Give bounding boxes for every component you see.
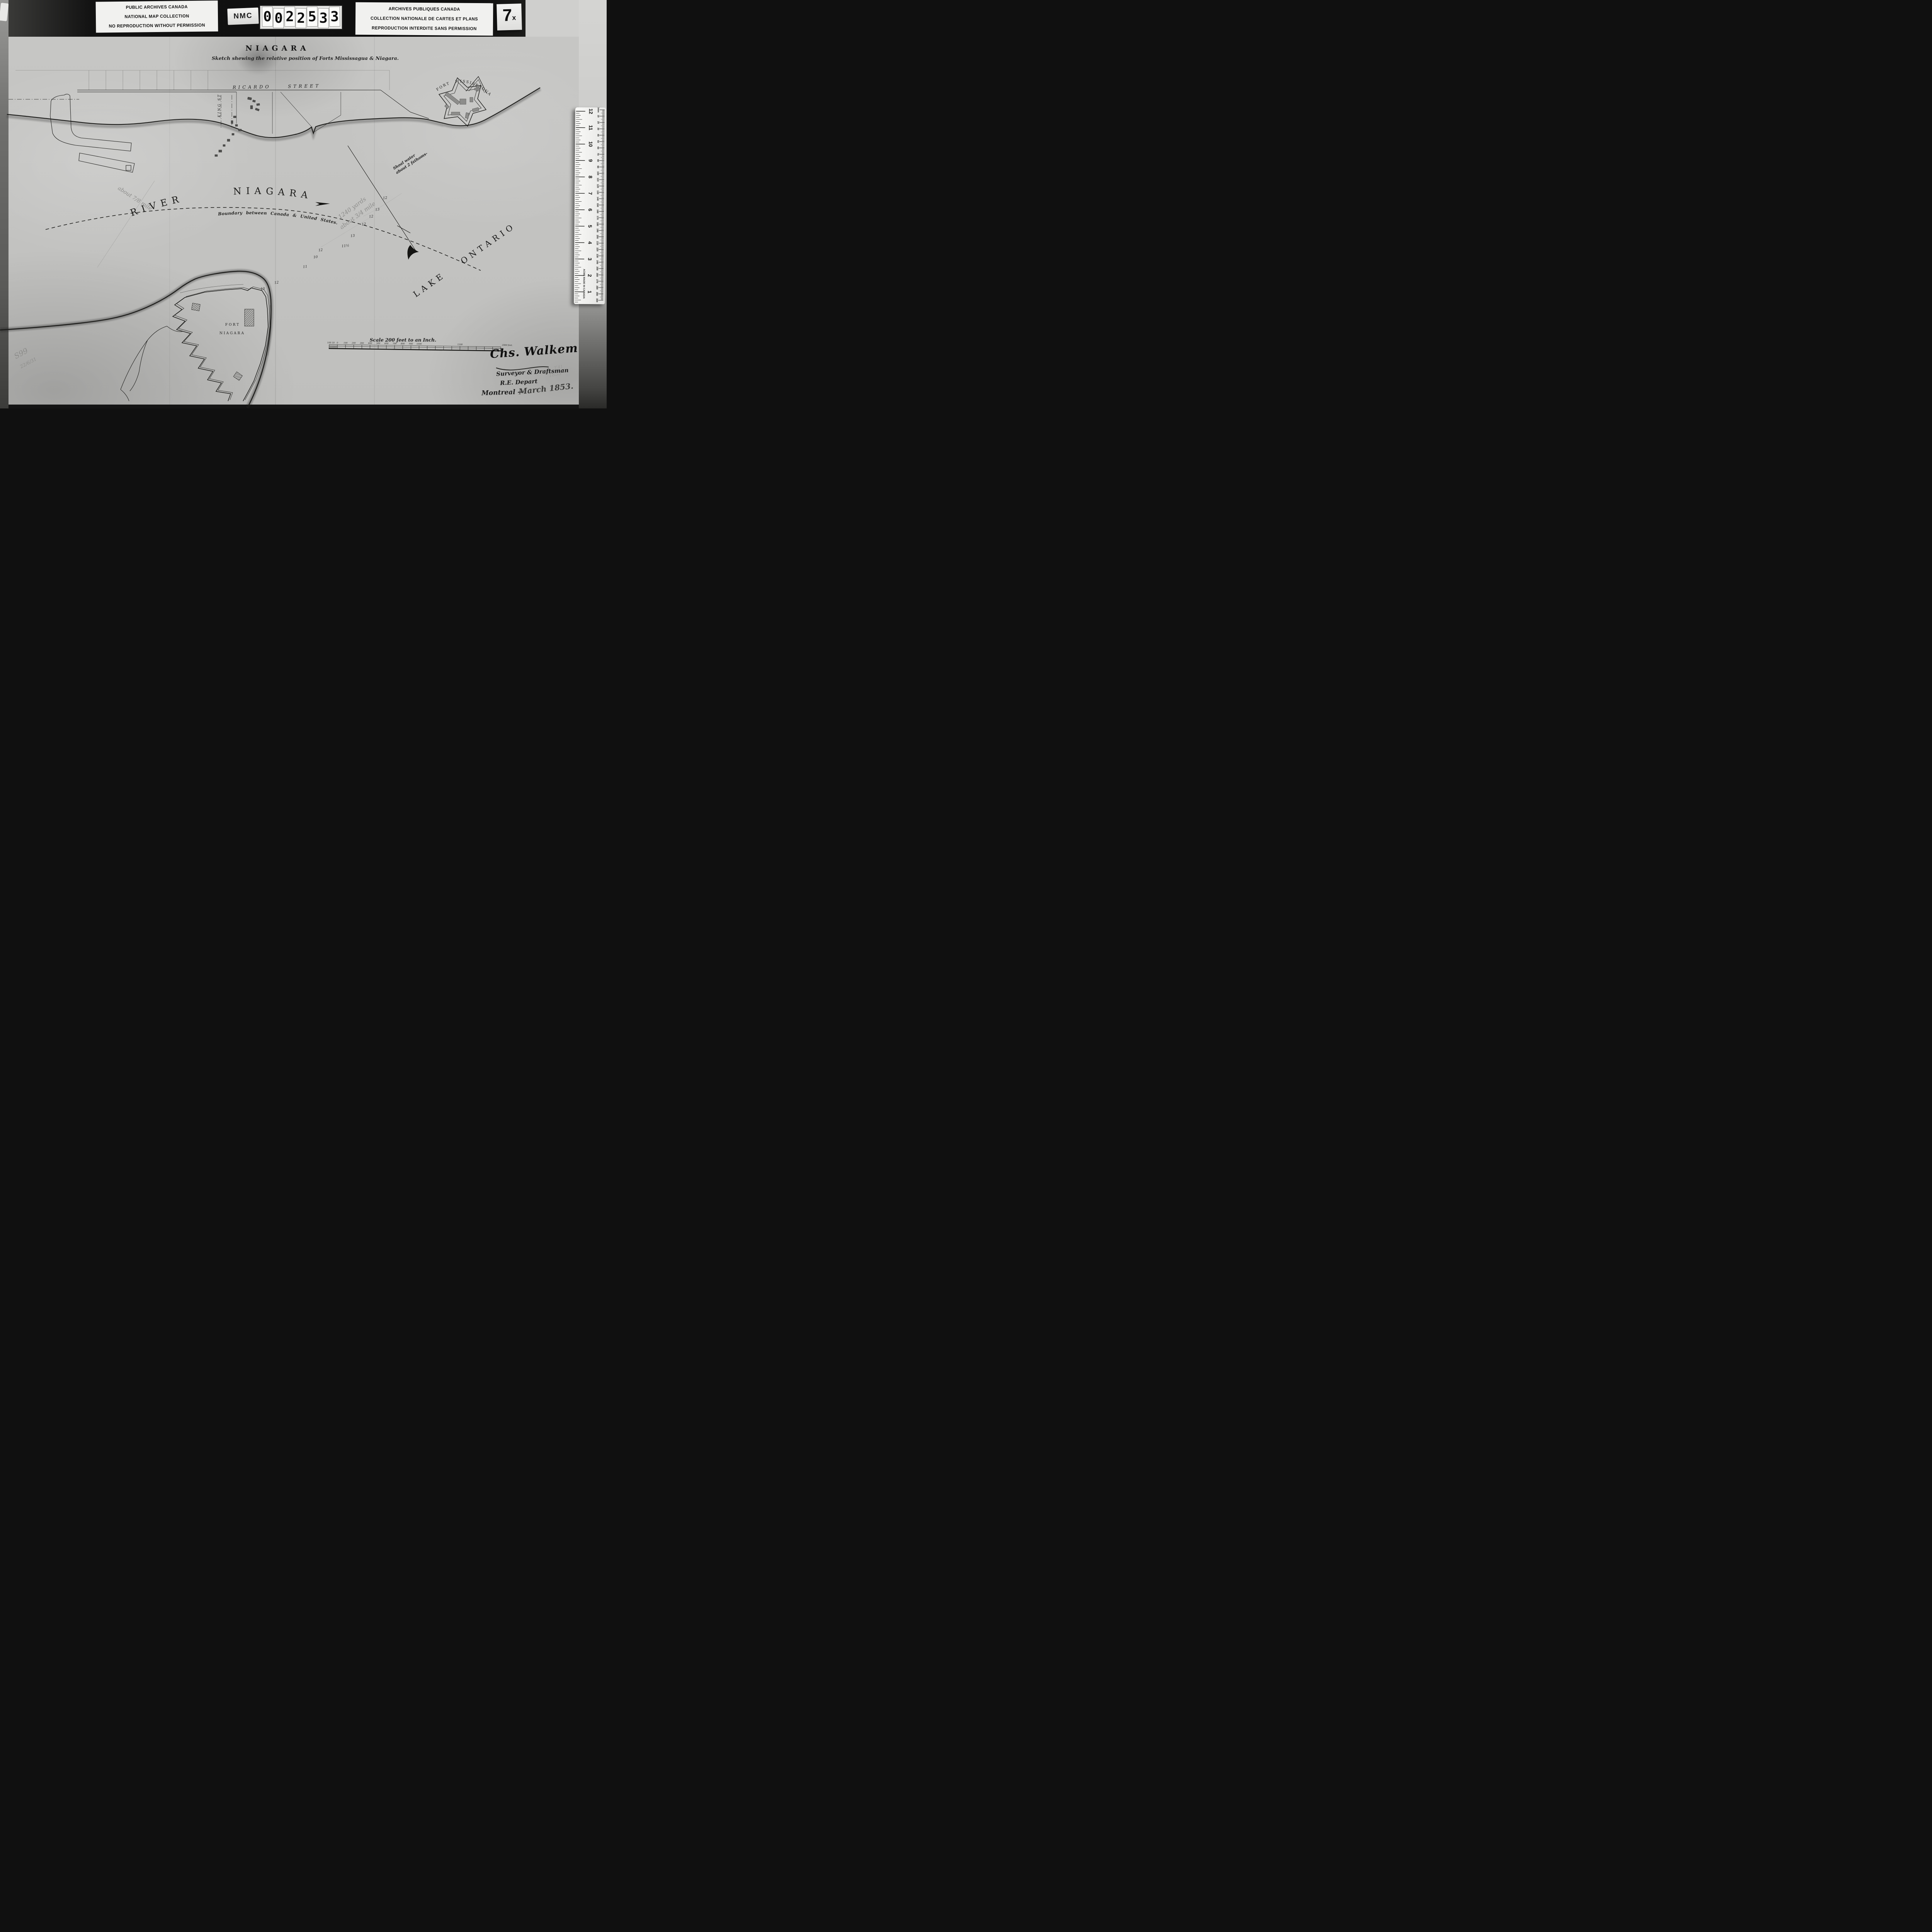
ruler-mm-label: 180 <box>596 222 599 226</box>
paper-fold <box>275 37 276 405</box>
ruler-mm-label: 250 <box>596 267 598 271</box>
ruler-mm-label: 170 <box>596 216 599 220</box>
ruler-mm-label: 200 <box>596 235 598 239</box>
archive-label-french: ARCHIVES PUBLIQUES CANADA COLLECTION NAT… <box>355 2 493 36</box>
archive-label-english: PUBLIC ARCHIVES CANADA NATIONAL MAP COLL… <box>96 0 218 32</box>
sounding-depth: 10 <box>313 255 318 259</box>
accession-digit: 3 <box>318 8 329 28</box>
sounding-depth: 10 <box>260 287 265 291</box>
ruler-inch-label: 8 <box>587 175 593 178</box>
fort-niagara-label-line1: FORT <box>221 323 244 327</box>
accession-digit: 0 <box>262 7 273 27</box>
accession-digit: 2 <box>284 7 296 27</box>
archive-label-line: PUBLIC ARCHIVES CANADA <box>100 4 213 10</box>
paper-fold <box>169 37 170 405</box>
ruler-mm-label: 210 <box>596 241 598 245</box>
ruler-mm-label: 0mm <box>597 107 599 112</box>
paper-fold <box>374 37 375 405</box>
archive-label-line: NO REPRODUCTION WITHOUT PERMISSION <box>100 23 213 29</box>
ruler-mm-label: 120 <box>596 184 599 188</box>
sounding-depth: 12 <box>362 222 366 226</box>
sounding-depth: 13 <box>350 234 355 238</box>
sounding-depth: 12 <box>318 248 323 252</box>
sounding-depth: 12 <box>369 214 374 219</box>
scale-caption: Scale 200 feet to an Inch. <box>362 337 444 343</box>
ruler-inch-label: 9 <box>588 159 594 162</box>
sounding-depth: 11½ <box>342 244 350 248</box>
size-tag: 7 x <box>497 3 522 31</box>
accession-digit: 0 <box>273 8 284 28</box>
ruler-mm-label: 270 <box>596 279 598 284</box>
ruler-mm-label: 160 <box>596 209 599 214</box>
ruler-mm-label: 40 <box>597 134 599 136</box>
ruler-mm-label: 30 <box>597 128 599 130</box>
accession-digit: 5 <box>307 7 318 27</box>
accession-digit: 3 <box>329 7 340 27</box>
king-street-label: KING ST <box>218 94 222 117</box>
photo-backdrop-left <box>0 0 9 408</box>
ruler-mm-label: 100 <box>597 171 599 175</box>
ruler-mm-label: 90 <box>597 166 599 168</box>
ruler-mm-label: 260 <box>596 273 598 277</box>
archival-map-photo: PUBLIC ARCHIVES CANADA NATIONAL MAP COLL… <box>0 0 607 408</box>
ruler-mm-label: 240 <box>596 260 598 264</box>
ruler-mm-label: 60 <box>597 146 599 149</box>
ruler-mm-label: 50 <box>597 140 599 143</box>
map-subtitle: Sketch shewing the relative position of … <box>212 55 386 61</box>
reference-ruler: 1211109876543210mm1020304050607080901001… <box>574 107 606 304</box>
ruler-inch-label: 5 <box>587 225 593 228</box>
ruler-mm-label: 20 <box>597 121 599 124</box>
ruler-mm-label: 230 <box>596 254 598 258</box>
accession-digit: 2 <box>296 8 307 28</box>
ruler-brand-label: ACME MADE IN CANADA <box>582 269 585 299</box>
accession-number-plate: 0022533 <box>259 5 343 30</box>
sounding-depth: 12 <box>274 281 279 285</box>
ruler-mm-label: 290 <box>595 292 598 296</box>
size-tag-number: 7 <box>502 4 512 27</box>
map-title: NIAGARA <box>239 44 316 53</box>
nmc-tag: NMC <box>227 7 259 25</box>
ruler-mm-label: 10 <box>597 115 599 117</box>
ruler-inch-label: 4 <box>587 241 593 244</box>
credit-place: Montreal — <box>481 388 524 397</box>
ruler-inch-label: 12 <box>588 109 594 114</box>
ruler-inch-label: 7 <box>587 192 593 195</box>
ruler-mm-label: 70 <box>597 153 599 156</box>
ruler-mm-label: 80 <box>597 159 599 162</box>
ruler-mm-label: 150 <box>596 203 599 207</box>
sounding-depth: 11 <box>303 265 308 269</box>
ruler-scales: 1211109876543210mm1020304050607080901001… <box>574 107 606 304</box>
ruler-mm-label: 190 <box>596 228 599 233</box>
ruler-inch-label: 3 <box>587 258 593 260</box>
fort-niagara-label-line2: NIAGARA <box>215 332 250 335</box>
nmc-tag-text: NMC <box>233 12 253 21</box>
ruler-inch-label: 10 <box>588 141 594 147</box>
ruler-mm-label: 220 <box>596 248 598 252</box>
ruler-mm-label: 130 <box>596 190 599 195</box>
ruler-inch-label: 1 <box>587 291 592 293</box>
sounding-depth: 13 <box>375 207 380 212</box>
archive-label-line: REPRODUCTION INTERDITE SANS PERMISSION <box>361 26 488 31</box>
size-tag-suffix: x <box>512 14 516 22</box>
ruler-inch-label: 2 <box>587 274 593 277</box>
archive-header-strip: PUBLIC ARCHIVES CANADA NATIONAL MAP COLL… <box>9 0 526 37</box>
ruler-mm-label: 300 <box>595 298 598 303</box>
ruler-mm-label: 140 <box>596 197 599 201</box>
archive-label-line: COLLECTION NATIONALE DE CARTES ET PLANS <box>361 16 488 22</box>
ruler-inch-label: 11 <box>588 125 594 131</box>
ruler-mm-label: 110 <box>596 178 599 182</box>
paper-edge-streak <box>0 3 9 21</box>
sounding-depth: 12 <box>383 196 388 200</box>
archive-label-line: NATIONAL MAP COLLECTION <box>100 14 213 19</box>
ruler-inch-label: 6 <box>587 208 593 211</box>
ruler-mm-label: 280 <box>595 286 598 290</box>
archive-label-line: ARCHIVES PUBLIQUES CANADA <box>361 7 488 12</box>
